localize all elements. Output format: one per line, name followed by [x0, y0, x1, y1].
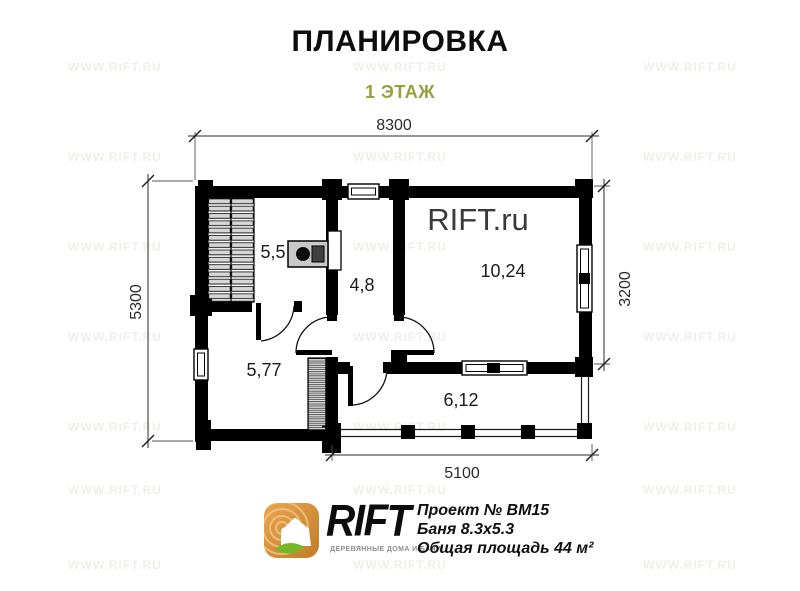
terrace-door-opening	[350, 360, 387, 376]
window-top	[348, 184, 379, 199]
door-steam-to-washroom	[256, 303, 294, 341]
bench-washroom	[308, 358, 326, 430]
project-number: Проект № ВМ15	[417, 501, 593, 520]
project-size: Баня 8.3х5.3	[417, 520, 593, 539]
project-total-area: Общая площадь 44 м²	[417, 539, 593, 558]
room-area-hallway: 4,8	[349, 275, 374, 295]
door-hall-to-washroom	[296, 317, 332, 355]
dimension-right: 3200	[594, 179, 634, 371]
rift-logo-icon	[263, 502, 320, 559]
page-title: ПЛАНИРОВКА	[0, 0, 800, 58]
dim-right-label: 3200	[617, 271, 634, 307]
project-info: Проект № ВМ15 Баня 8.3х5.3 Общая площадь…	[417, 501, 593, 558]
dim-left-label: 5300	[128, 284, 145, 320]
dimension-top: 8300	[188, 117, 599, 180]
header: ПЛАНИРОВКА 1 ЭТАЖ	[0, 0, 800, 103]
footer: RIFT ДЕРЕВЯННЫЕ ДОМА И БАНИ Проект № ВМ1…	[0, 495, 800, 575]
dim-top-label: 8300	[376, 117, 412, 134]
dimension-left: 5300	[128, 174, 193, 448]
sauna-benches	[208, 198, 254, 302]
window-right	[577, 245, 592, 312]
room-area-steam-room: 5,5	[260, 242, 285, 262]
room-area-washing-room: 5,77	[246, 360, 281, 380]
window-left	[194, 349, 208, 380]
dimension-bottom: 5100	[325, 444, 599, 482]
room-area-terrace: 6,12	[443, 390, 478, 410]
terrace-door-jamb	[383, 362, 389, 373]
door-hall-to-restroom	[398, 317, 434, 355]
plan-watermark-text: RIFT.ru	[427, 202, 529, 237]
dim-bottom-label: 5100	[444, 465, 480, 482]
page-background: WWW.RIFT.RUWWW.RIFT.RUWWW.RIFT.RUWWW.RIF…	[0, 0, 800, 591]
floor-subtitle: 1 ЭТАЖ	[0, 58, 800, 103]
window-terrace-wall	[462, 361, 527, 375]
sauna-stove	[288, 231, 341, 270]
room-area-rest-room: 10,24	[480, 261, 525, 281]
rift-logo-text: RIFT	[326, 495, 410, 547]
